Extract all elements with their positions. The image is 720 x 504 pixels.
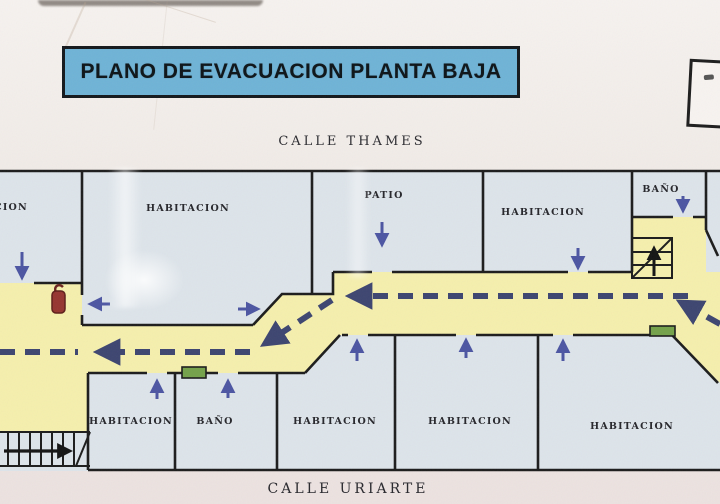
floor-plan: HABITACION HABITACION PATIO HABITACION B…: [0, 0, 720, 504]
street-label-calle-uriarte: CALLE URIARTE: [228, 481, 468, 497]
evacuation-plan-photo: PLANO DE EVACUACION PLANTA BAJA CALLE TH…: [0, 0, 720, 504]
photo-grain: [0, 0, 720, 504]
